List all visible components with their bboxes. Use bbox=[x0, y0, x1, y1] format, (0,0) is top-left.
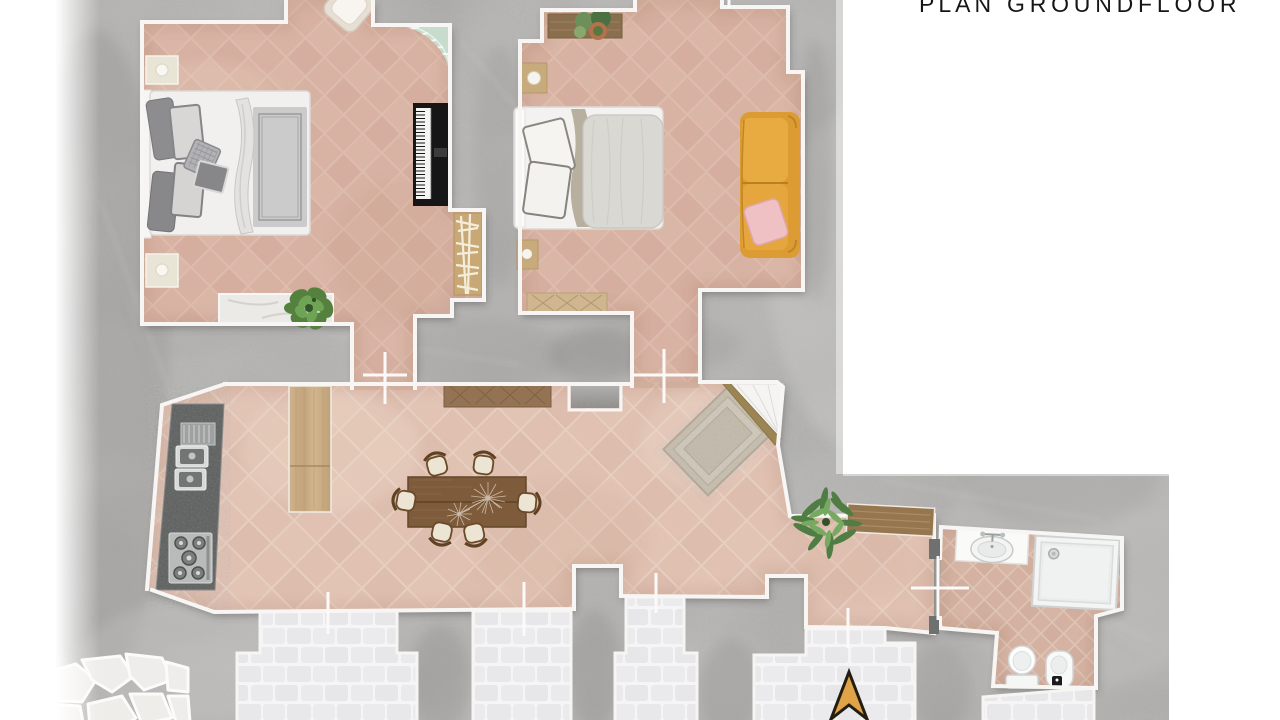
svg-text:PLAN: PLAN bbox=[919, 0, 995, 17]
svg-text:GROUNDFLOOR: GROUNDFLOOR bbox=[1007, 0, 1241, 17]
